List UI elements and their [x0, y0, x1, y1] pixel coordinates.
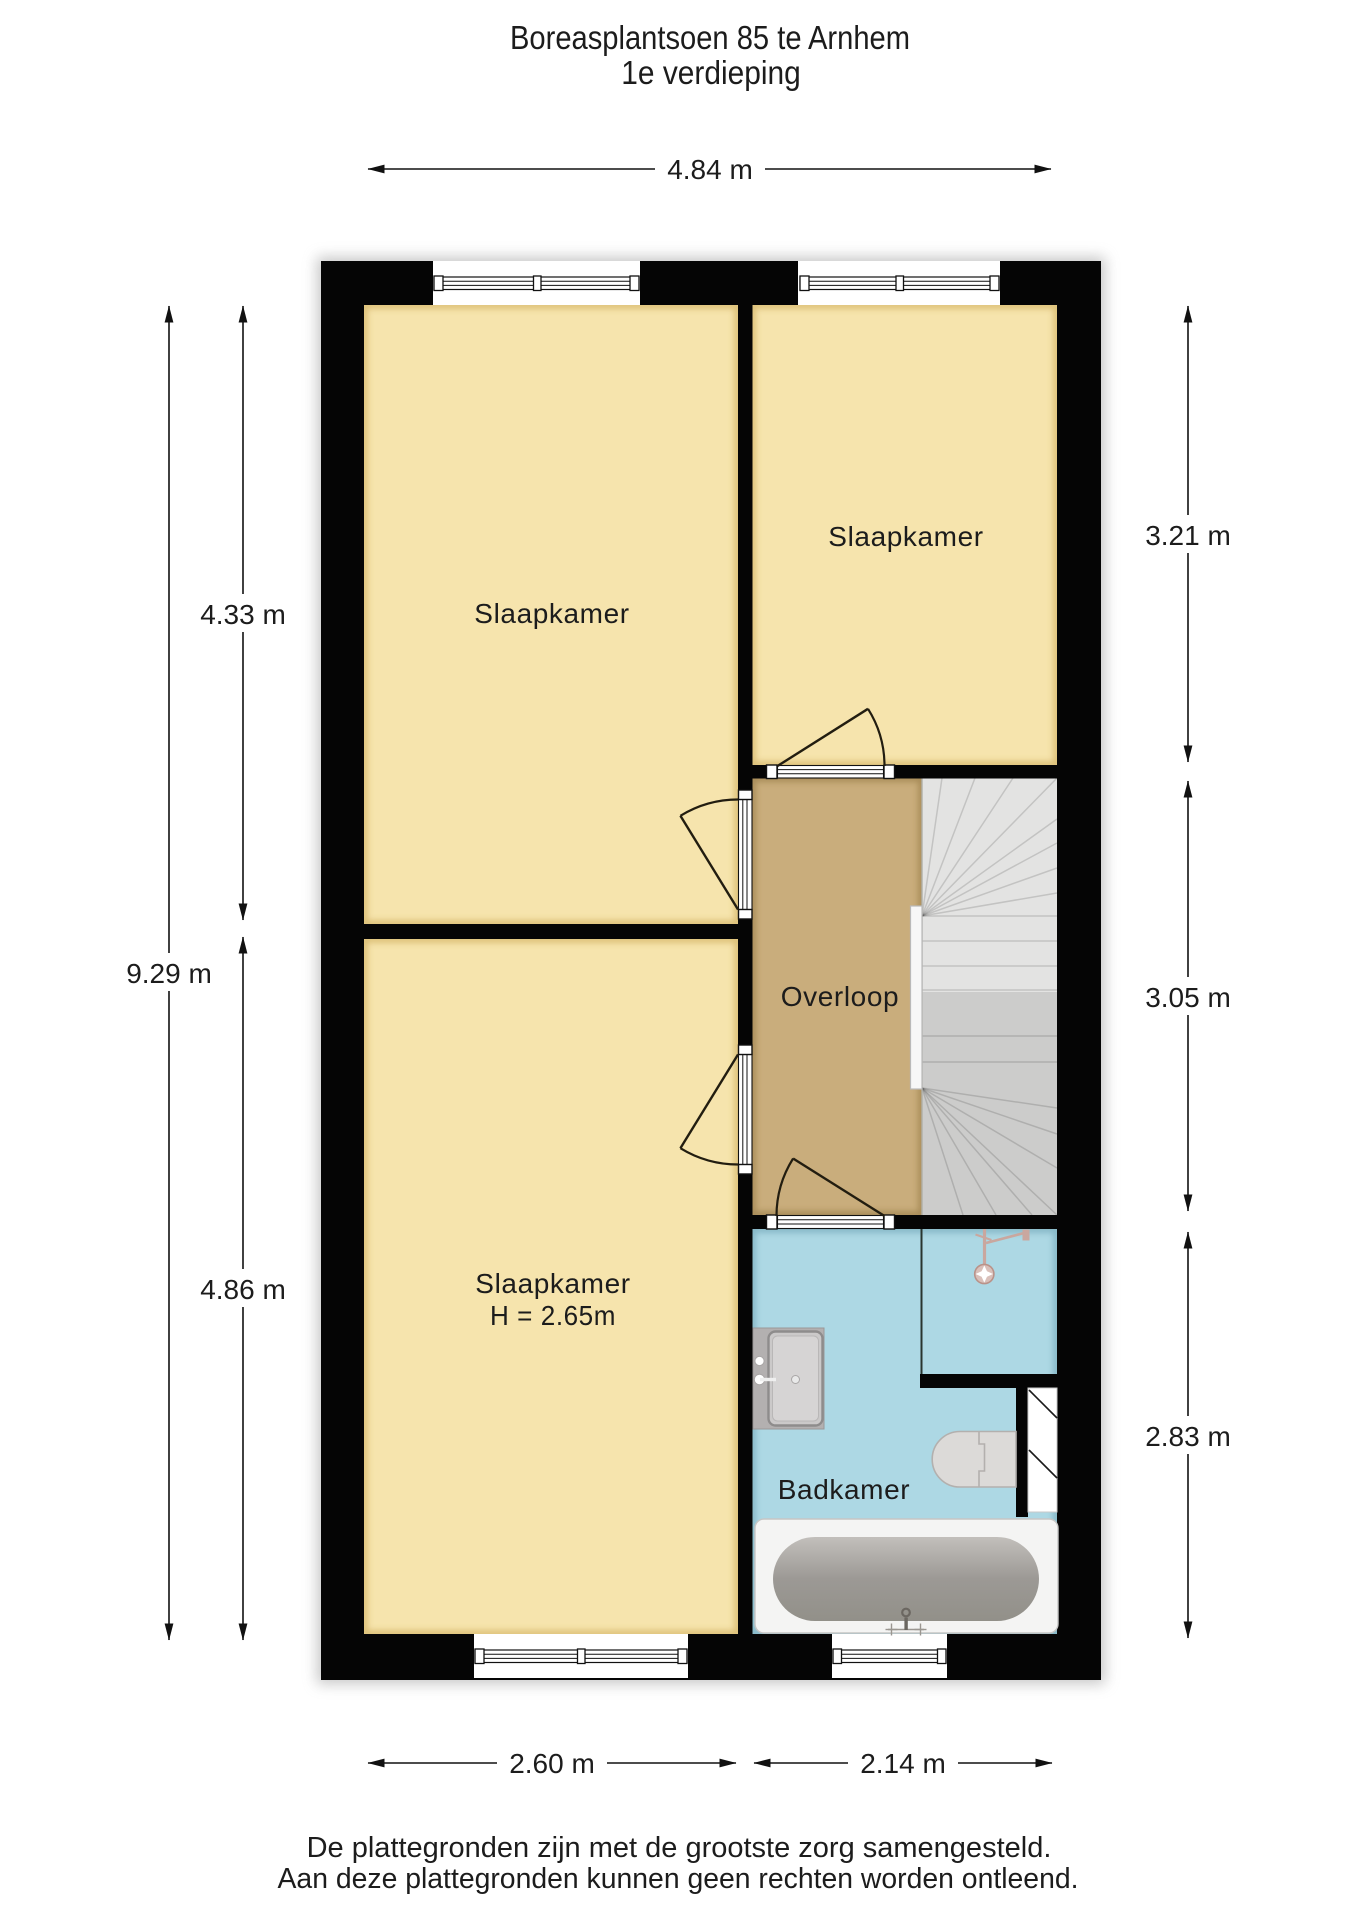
svg-text:Slaapkamer: Slaapkamer — [828, 521, 983, 552]
svg-text:2.14 m: 2.14 m — [860, 1748, 946, 1779]
svg-text:Aan deze plattegronden kunnen: Aan deze plattegronden kunnen geen recht… — [278, 1863, 1079, 1895]
svg-text:2.83 m: 2.83 m — [1145, 1421, 1231, 1452]
svg-text:2.60 m: 2.60 m — [509, 1748, 595, 1779]
svg-text:H = 2.65m: H = 2.65m — [490, 1300, 616, 1331]
svg-text:9.29 m: 9.29 m — [126, 958, 212, 989]
svg-text:Boreasplantsoen 85 te Arnhem: Boreasplantsoen 85 te Arnhem — [510, 19, 910, 56]
svg-text:Slaapkamer: Slaapkamer — [474, 598, 629, 629]
svg-text:4.33 m: 4.33 m — [200, 599, 286, 630]
svg-text:Badkamer: Badkamer — [778, 1474, 910, 1505]
svg-text:3.21 m: 3.21 m — [1145, 520, 1231, 551]
svg-text:Overloop: Overloop — [781, 981, 899, 1012]
svg-text:Slaapkamer: Slaapkamer — [475, 1268, 630, 1299]
svg-text:3.05 m: 3.05 m — [1145, 982, 1231, 1013]
svg-text:1e verdieping: 1e verdieping — [621, 55, 800, 92]
svg-text:De plattegronden zijn met de g: De plattegronden zijn met de grootste zo… — [307, 1832, 1052, 1864]
svg-text:4.84 m: 4.84 m — [667, 154, 753, 185]
svg-text:4.86 m: 4.86 m — [200, 1274, 286, 1305]
